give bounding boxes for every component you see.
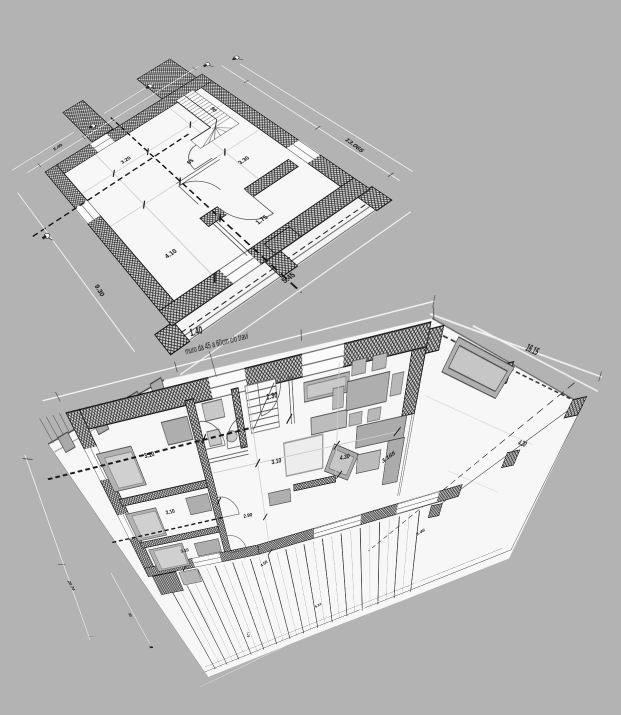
- svg-text:1.40: 1.40: [189, 324, 204, 339]
- svg-text:1.25: 1.25: [246, 632, 250, 637]
- svg-text:20.24: 20.24: [66, 581, 76, 591]
- svg-text:16.15: 16.15: [523, 342, 541, 358]
- svg-text:90: 90: [127, 613, 133, 617]
- svg-text:2.40: 2.40: [51, 142, 64, 152]
